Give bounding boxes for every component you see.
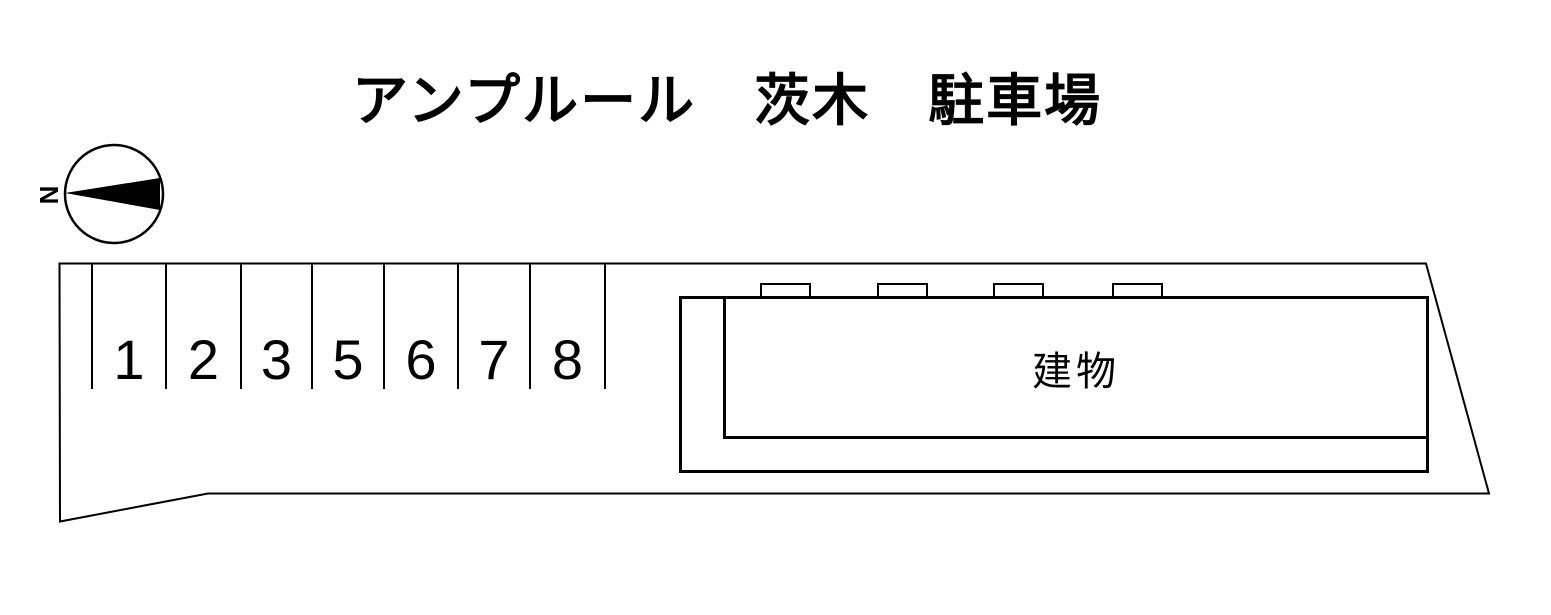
building-entrance-marker <box>760 283 811 298</box>
building-entrance-marker <box>993 283 1044 298</box>
building-entrance-marker <box>1112 283 1163 298</box>
parking-spot-6: 6 <box>384 326 458 392</box>
parking-spot-2: 2 <box>166 326 241 392</box>
parking-spot-7: 7 <box>458 326 530 392</box>
parking-spot-5: 5 <box>312 326 384 392</box>
building-label: 建物 <box>1032 339 1120 397</box>
parking-spot-3: 3 <box>241 326 312 392</box>
building: 建物 <box>723 296 1429 439</box>
parking-spot-1: 1 <box>92 326 166 392</box>
building-entrance-marker <box>877 283 928 298</box>
parking-spot-8: 8 <box>530 326 605 392</box>
